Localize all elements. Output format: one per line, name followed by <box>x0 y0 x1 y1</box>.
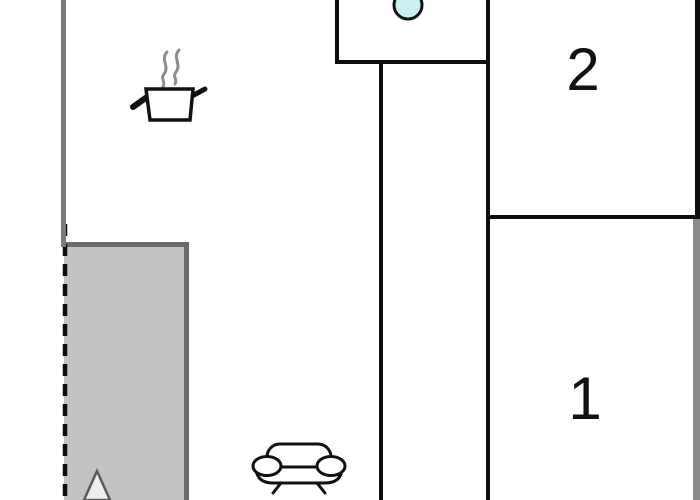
wall-room1-right <box>693 219 700 500</box>
terrace-wall-top <box>61 242 189 247</box>
floorplan-canvas: 2 1 <box>0 0 700 500</box>
wall-room-divider <box>486 215 700 219</box>
sofa-icon <box>253 444 345 493</box>
steam-icon <box>163 52 167 87</box>
sofa-armrest-left <box>253 457 281 476</box>
pot-body <box>146 89 193 120</box>
terrace-area <box>61 224 189 500</box>
terrace-wall-right <box>184 242 189 500</box>
sink-icon <box>394 0 422 19</box>
wall-exterior-left <box>61 0 66 247</box>
sofa-armrest-right <box>317 457 345 476</box>
wall-corridor-left <box>379 60 383 500</box>
steam-icon <box>175 50 179 84</box>
bathroom <box>394 0 422 19</box>
wall-bathroom-left <box>335 0 339 64</box>
terrace-floor <box>64 243 185 500</box>
room-1-label: 1 <box>568 365 601 432</box>
wall-rooms-left <box>486 0 490 500</box>
pot-handle-left <box>133 97 147 107</box>
wall-room2-right <box>695 0 700 219</box>
wall-bathroom-bottom <box>335 60 490 64</box>
floorplan-page: 2 1 <box>0 0 700 500</box>
stove-pot-icon <box>133 50 205 120</box>
room-2-label: 2 <box>566 36 599 103</box>
